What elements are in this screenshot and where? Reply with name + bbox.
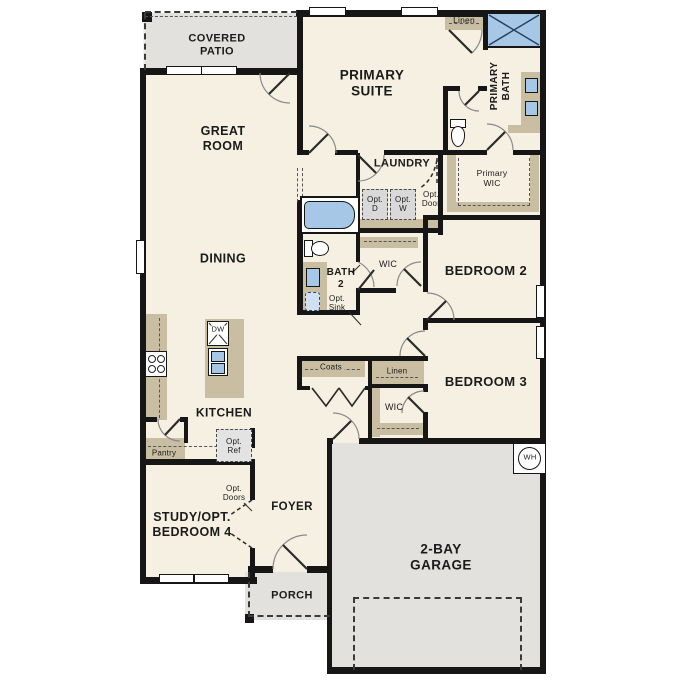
window [536,326,545,359]
dishwasher-label: DW [211,326,226,335]
wall [327,441,332,671]
wall [297,150,309,155]
wall [368,384,372,441]
wall [513,150,546,155]
window [159,574,194,583]
porch-edge-dashed [248,572,250,617]
wall [368,384,428,388]
opt-dryer-label: Opt. D [367,195,383,213]
wall [443,88,448,152]
wall [250,459,255,500]
primary-wic-shelf-north [508,125,542,133]
patio-edge-dashed [144,13,146,70]
wall [478,86,487,91]
foyer-label: FOYER [271,500,313,514]
porch-label: PORCH [271,589,313,602]
burner-icon [157,355,165,363]
opt-washer-label: Opt. W [395,195,411,213]
burner-icon [157,365,165,373]
patio-edge-dashed [145,11,297,13]
cased-opening-dashed [297,168,298,202]
window [166,66,202,75]
wall [184,417,188,443]
window [194,574,229,583]
island-sink [211,351,225,362]
shelf-dashed [376,377,418,378]
opt-ref-label: Opt. Ref [226,437,242,455]
wall [297,356,428,361]
wic-bedroom2-label: WIC [379,259,397,269]
wall [140,68,146,584]
shelf-dashed [377,428,419,429]
burner-icon [148,365,156,373]
toilet-bowl [311,241,329,256]
wall [423,318,428,330]
window [201,66,237,75]
opt-door-label: Opt. Door [422,190,440,208]
window [401,7,438,16]
bath-2-label: BATH 2 [327,267,356,291]
wic3-shelf-bottom [373,423,423,435]
bathtub [304,201,355,229]
burner-icon [148,355,156,363]
covered-patio-label: COVERED PATIO [188,33,245,60]
wall [423,215,546,220]
wic2-shelf [360,237,418,248]
great-room-label: GREAT ROOM [201,124,246,155]
wic-bedroom3-label: WIC [385,402,403,412]
patio-edge-dashed [145,16,297,17]
wall [423,412,428,441]
pantry-label: Pantry [150,448,178,457]
range [145,351,167,377]
window [309,7,346,16]
primary-wic-label: Primary WIC [477,169,508,189]
wall [356,288,396,293]
window [136,240,145,274]
wall [356,290,360,315]
window [536,285,545,318]
primary-wic-shelf-right [530,155,539,212]
wall [356,228,442,233]
shelf-dashed [364,241,416,242]
laundry-label: LAUNDRY [374,157,430,170]
sink [525,78,538,93]
garage-label: 2-BAY GARAGE [410,542,472,575]
wall [327,438,333,444]
linen-label: Linen [453,16,475,26]
wall [335,150,358,155]
water-heater-label: WH [524,454,537,463]
wall [140,417,157,422]
coats-label: Coats [318,362,344,371]
opt-sink-label: Opt. Sink [329,294,345,312]
kitchen-label: KITCHEN [196,406,252,421]
bath2-sink [306,268,320,287]
wall [297,356,302,390]
island-sink [211,363,225,374]
floor-plan: COVERED PATIO GREAT ROOM PRIMARY SUITE L… [0,0,687,687]
wall [250,548,255,580]
opt-doors-label: Opt. Doors [223,484,245,502]
wall [297,386,310,390]
porch-edge-dashed [248,615,330,617]
bath2-opt-sink [305,292,320,311]
study-label: STUDY/OPT. BEDROOM 4 [152,510,231,541]
wall [443,86,460,91]
wall [356,153,360,198]
bedroom-2-label: BEDROOM 2 [445,263,527,279]
wall [384,150,440,155]
wall [423,318,546,323]
garage-door-dashed [353,597,522,670]
primary-suite-label: PRIMARY SUITE [340,68,405,101]
wall [423,215,428,292]
bedroom-3-label: BEDROOM 3 [445,374,527,390]
primary-bath-label: PRIMARY BATH [489,62,513,111]
wall [297,13,303,153]
shower [486,12,542,48]
wall [423,384,428,392]
linen-hall-label: Linen [385,366,410,375]
dining-label: DINING [200,251,246,266]
sink [525,101,538,116]
